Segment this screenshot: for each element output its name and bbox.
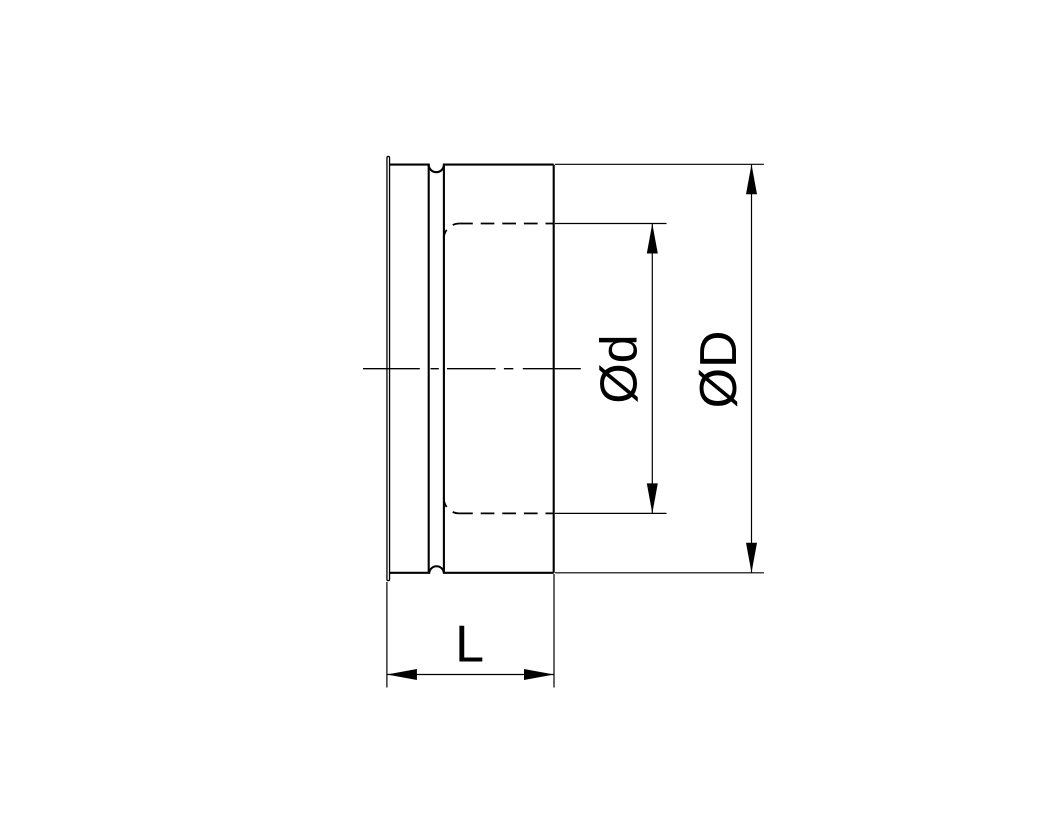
svg-text:ØD: ØD [690,330,748,408]
svg-text:Ød: Ød [591,334,649,403]
svg-text:L: L [455,616,484,674]
